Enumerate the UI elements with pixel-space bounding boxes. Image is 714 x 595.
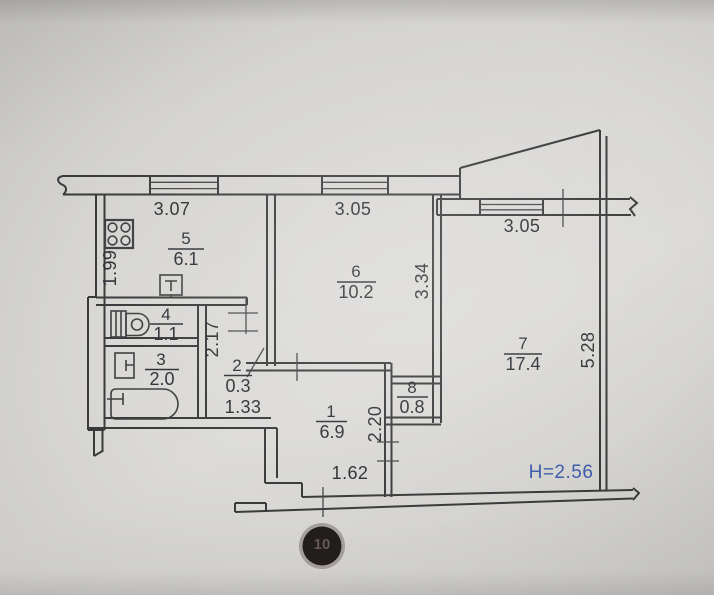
- room-8-area: 0.8: [399, 397, 424, 417]
- kitchen-window: [150, 176, 218, 195]
- room-label-4: 4 1.1: [150, 305, 183, 344]
- room-4-area: 1.1: [153, 324, 178, 344]
- wall-stub: [94, 430, 103, 456]
- room-2-number: 2: [232, 356, 241, 375]
- dim-kitchen-width: 3.07: [154, 199, 191, 219]
- room-5-number: 5: [181, 229, 190, 248]
- dim-closet-width: 1.33: [225, 397, 262, 417]
- water-heater-icon: [160, 275, 182, 298]
- wall-break-left: [58, 176, 66, 195]
- wall-break-right: [630, 197, 637, 216]
- toilet-icon: [111, 311, 149, 337]
- room-4-number: 4: [161, 305, 170, 324]
- room-label-7: 7 17.4: [504, 334, 542, 374]
- room-label-3: 3 2.0: [145, 350, 179, 389]
- bathtub-icon: [107, 389, 178, 419]
- dim-corridor-depth: 2.17: [202, 321, 222, 358]
- room-1-area: 6.9: [319, 422, 344, 442]
- room-6-number: 6: [351, 262, 360, 281]
- room-5-area: 6.1: [173, 249, 198, 269]
- stove-icon: [105, 220, 133, 248]
- room-6-area: 10.2: [338, 282, 373, 302]
- room-2-area: 0.3: [225, 376, 250, 396]
- dim-hall-depth: 2.20: [365, 406, 385, 443]
- outer-walls: [58, 130, 639, 512]
- room-8-number: 8: [407, 378, 416, 397]
- room6-window: [322, 176, 388, 195]
- sink-icon: [115, 353, 134, 378]
- room-label-1: 1 6.9: [316, 402, 347, 442]
- dim-room6-depth: 3.34: [412, 263, 432, 300]
- interior-walls: [88, 195, 441, 498]
- dim-room7-width: 3.05: [504, 216, 541, 236]
- floorplan-photo: 3.07 3.05 3.05 1.99 2.17 3.34 5.28 2.20 …: [0, 0, 714, 595]
- ceiling-height-note: H=2.56: [529, 462, 594, 483]
- room-3-number: 3: [156, 350, 165, 369]
- dim-room6-width: 3.05: [335, 199, 372, 219]
- room-label-6: 6 10.2: [337, 262, 376, 302]
- floorplan-drawing: 3.07 3.05 3.05 1.99 2.17 3.34 5.28 2.20 …: [0, 0, 714, 595]
- dim-entry-width: 1.62: [332, 463, 369, 483]
- room-3-area: 2.0: [149, 369, 174, 389]
- dim-room7-depth: 5.28: [578, 332, 598, 369]
- room-1-number: 1: [326, 402, 335, 421]
- hole-stamp: 10: [299, 523, 345, 569]
- room-7-area: 17.4: [505, 354, 540, 374]
- room7-window: [480, 199, 543, 215]
- stamp-number: 10: [314, 536, 331, 553]
- room-label-5: 5 6.1: [168, 229, 204, 269]
- wall-break-bottom-right: [633, 488, 639, 500]
- room-7-number: 7: [518, 334, 527, 353]
- dim-kitchen-depth: 1.99: [100, 250, 120, 287]
- balcony: [460, 130, 600, 199]
- door-and-dimension-marks: [228, 189, 563, 517]
